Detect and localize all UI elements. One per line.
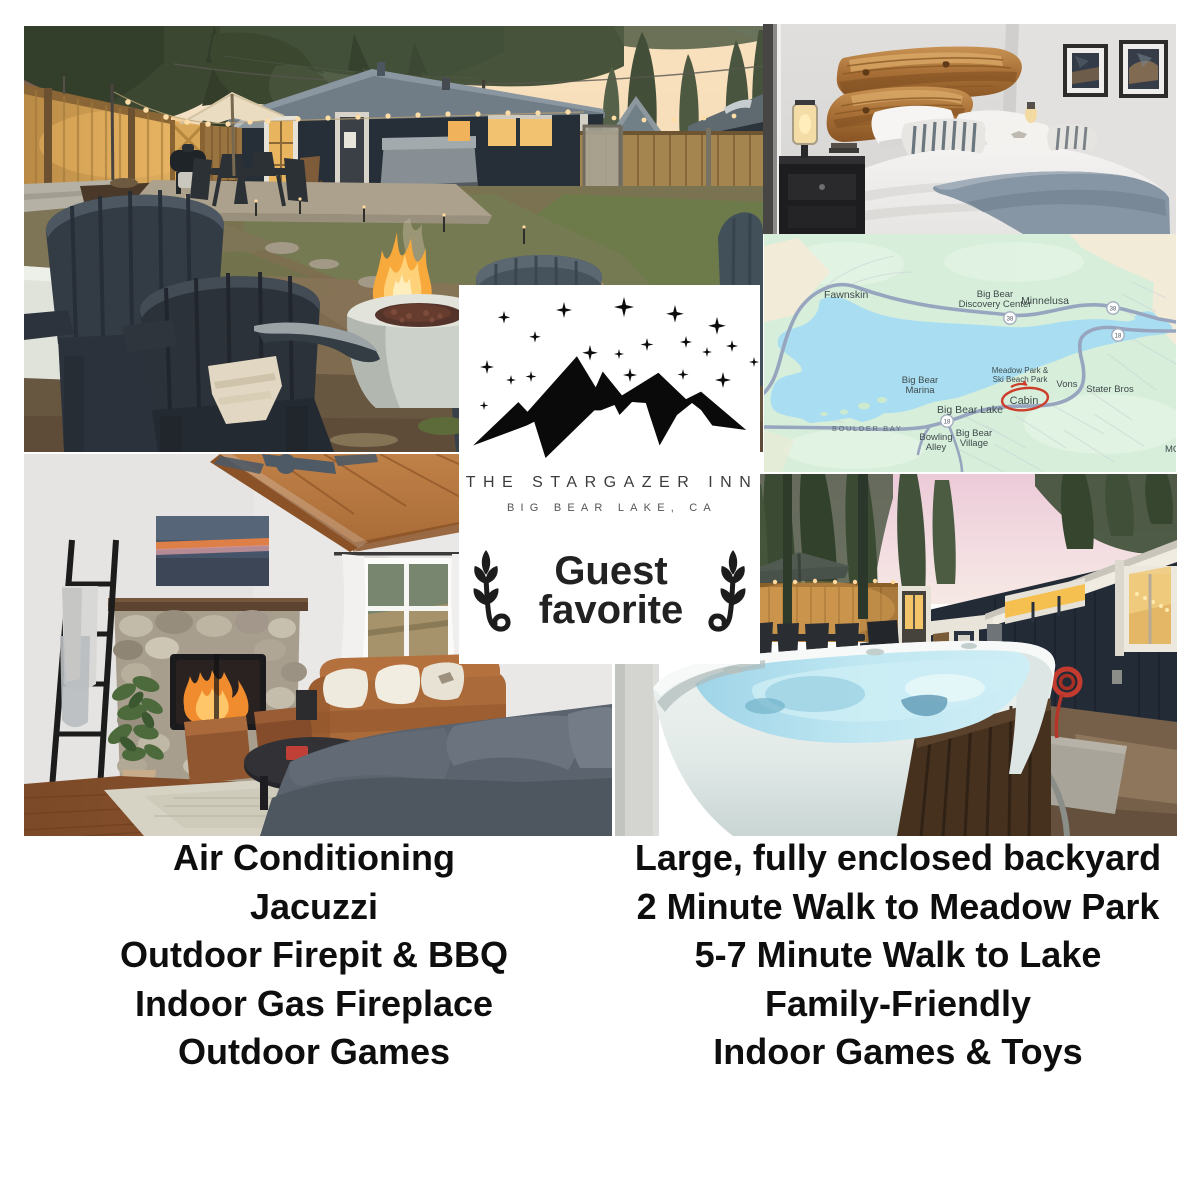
svg-text:18: 18 (944, 420, 951, 426)
svg-text:Fawnskin: Fawnskin (824, 289, 869, 301)
svg-text:THE STARGAZER INN: THE STARGAZER INN (466, 474, 759, 491)
svg-text:Village: Village (960, 438, 988, 449)
svg-text:Minnelusa: Minnelusa (1021, 295, 1069, 307)
svg-text:Guest: Guest (554, 549, 667, 593)
svg-text:Meadow Park &: Meadow Park & (992, 366, 1049, 375)
svg-text:BIG BEAR LAKE, CA: BIG BEAR LAKE, CA (507, 502, 717, 514)
svg-text:38: 38 (1110, 307, 1117, 313)
svg-text:Marina: Marina (905, 385, 935, 396)
svg-text:Vons: Vons (1056, 379, 1077, 390)
svg-text:Cabin: Cabin (1010, 395, 1039, 407)
svg-text:18: 18 (1115, 334, 1122, 340)
svg-text:Alley: Alley (926, 442, 947, 453)
svg-text:Big Bear Lake: Big Bear Lake (937, 404, 1003, 416)
svg-text:BOULDER BAY: BOULDER BAY (832, 424, 902, 433)
svg-text:MO: MO (1165, 444, 1176, 455)
svg-text:38: 38 (1007, 317, 1014, 323)
svg-text:Stater Bros: Stater Bros (1086, 384, 1134, 395)
svg-text:favorite: favorite (539, 588, 684, 632)
svg-text:Ski Beach Park: Ski Beach Park (993, 375, 1049, 384)
